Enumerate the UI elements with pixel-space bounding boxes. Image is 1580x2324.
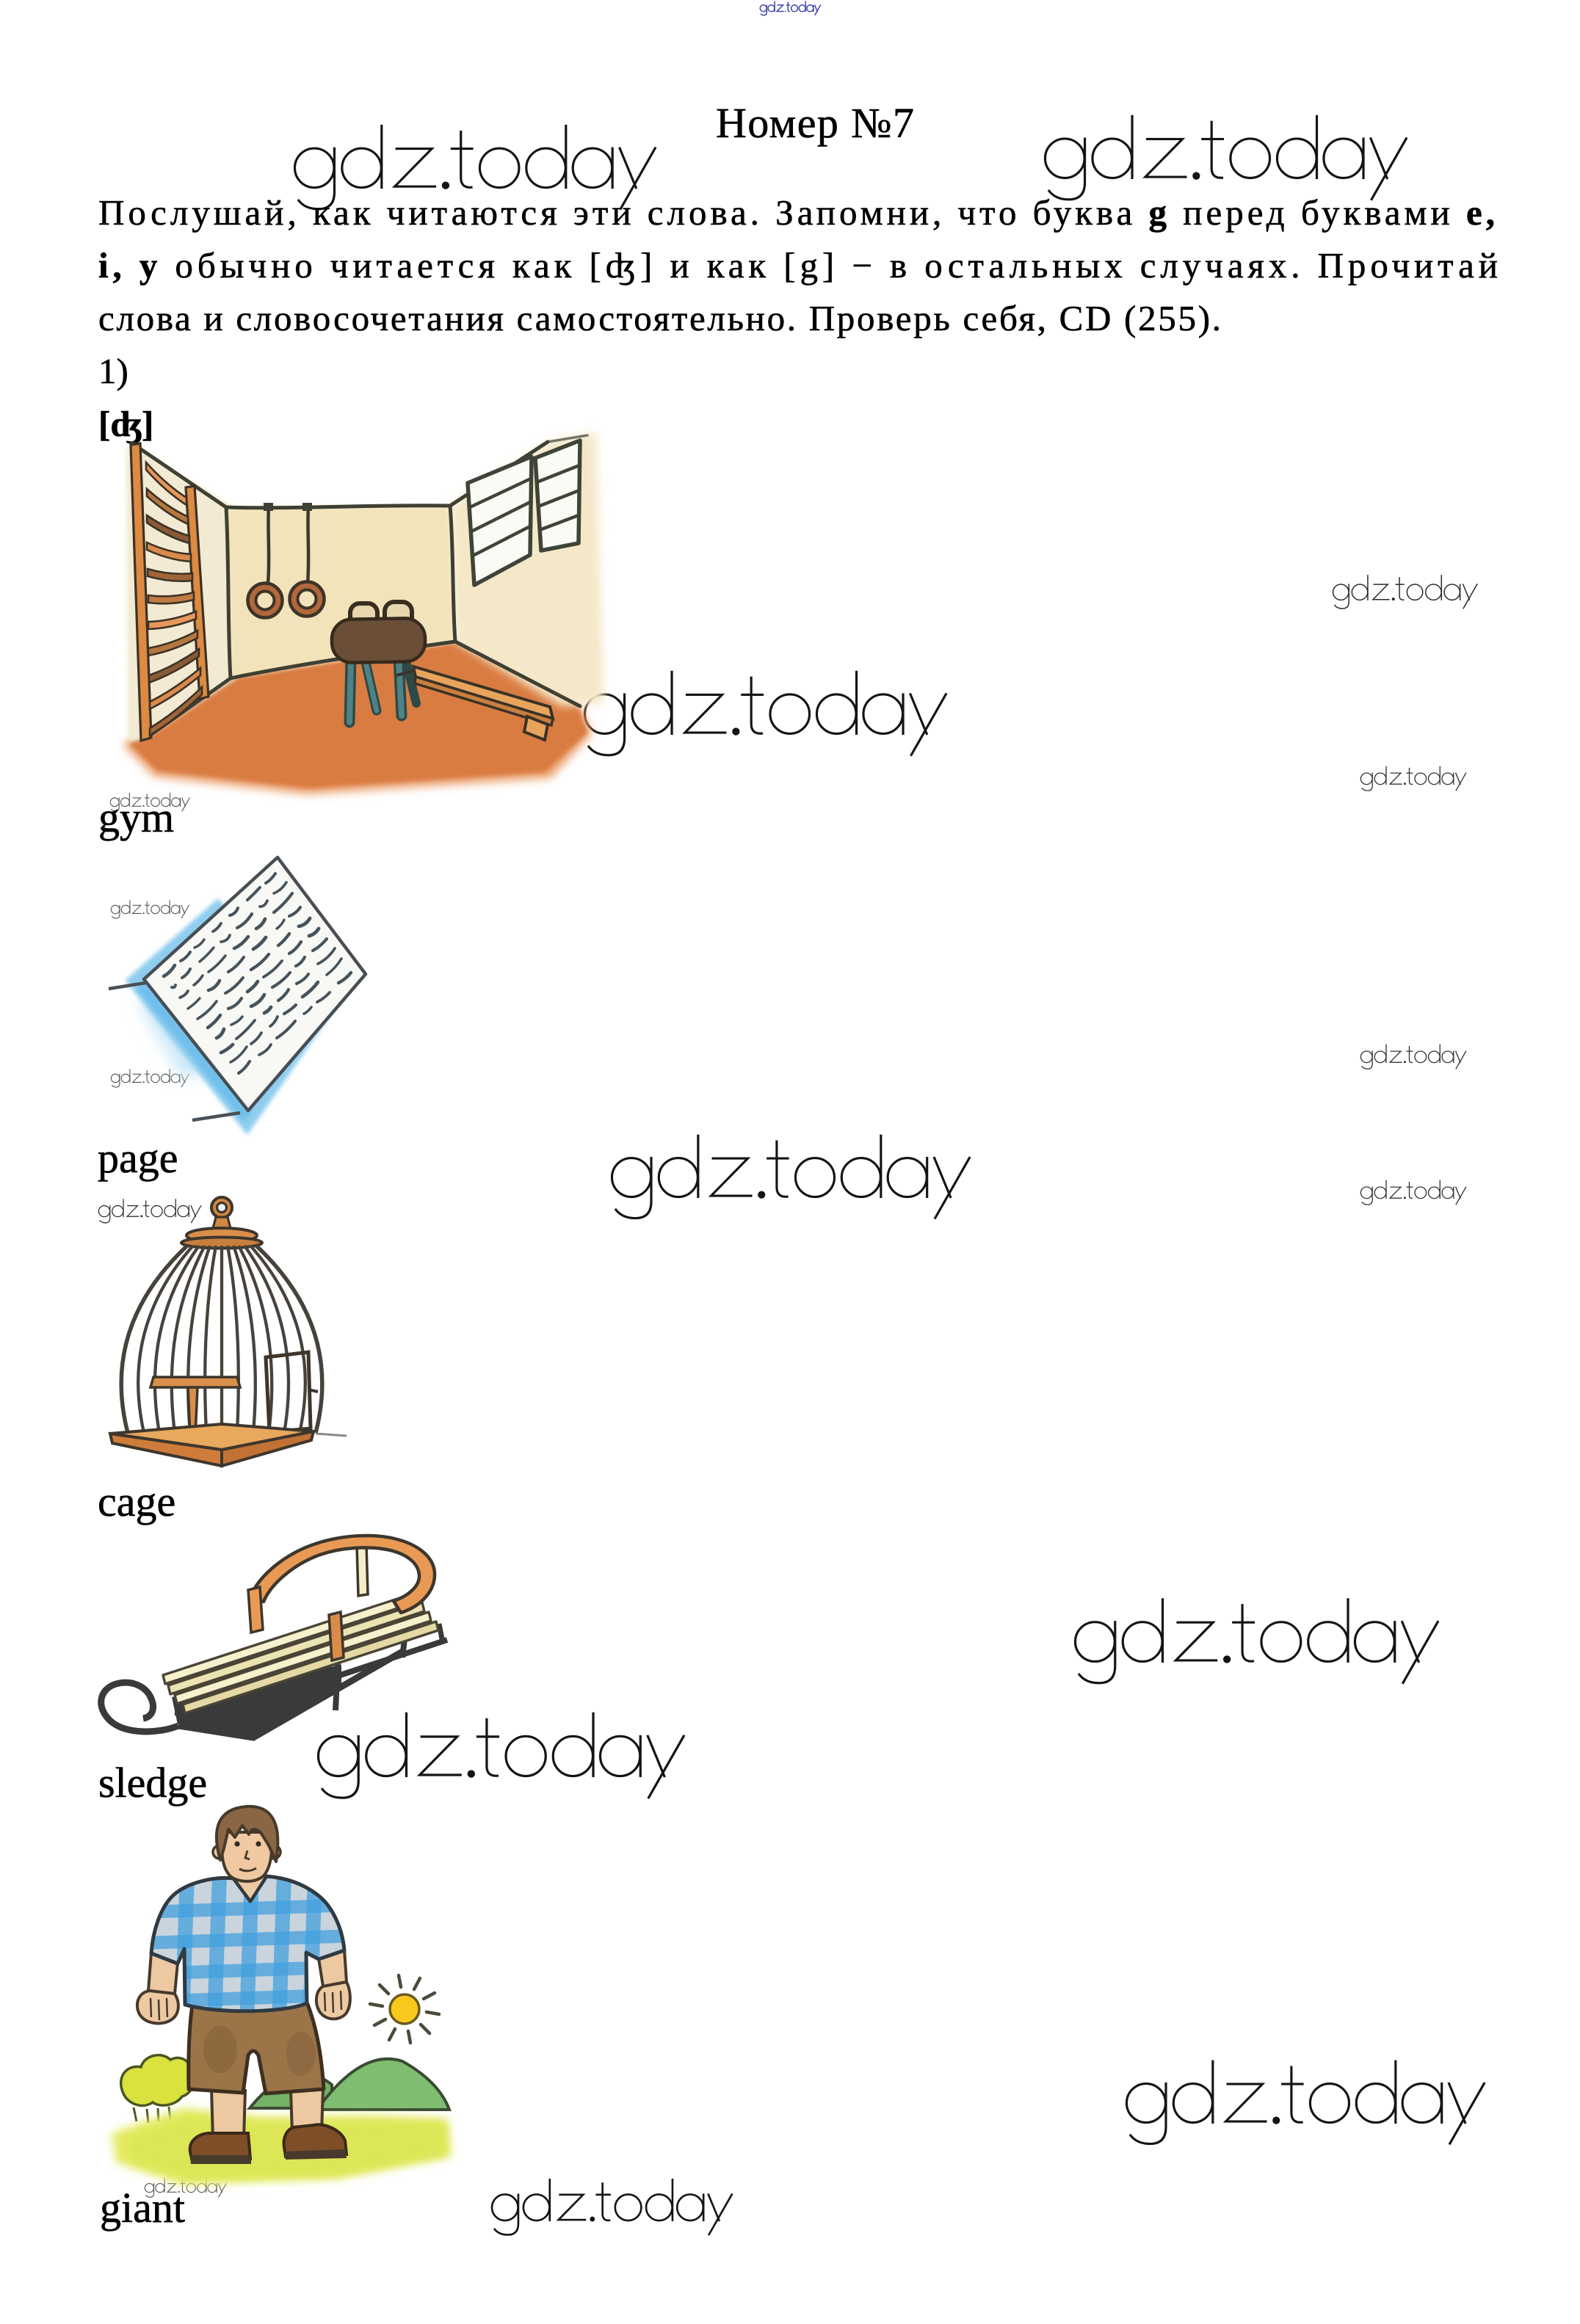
svg-text:Номер №7: Номер №7 [716,99,914,147]
svg-text:gym: gym [98,794,174,841]
svg-text:cage: cage [98,1478,175,1525]
svg-text:[ʤ]: [ʤ] [98,404,153,444]
svg-text:1): 1) [98,351,128,391]
svg-text:sledge: sledge [98,1759,207,1806]
svg-text:giant: giant [100,2184,185,2232]
svg-text:page: page [98,1134,178,1182]
svg-text:слова и словосочетания самосто: слова и словосочетания самостоятельно. П… [98,298,1221,338]
